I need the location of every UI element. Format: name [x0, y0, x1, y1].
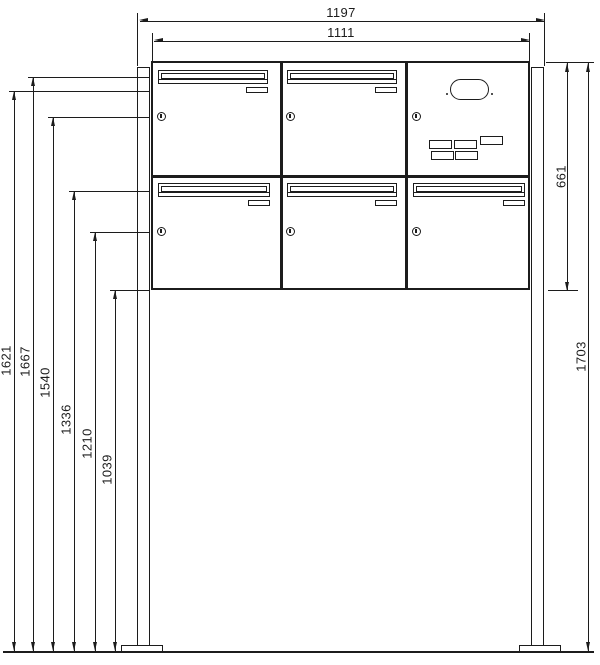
dim-arrow	[154, 38, 163, 42]
mail-slot-2	[287, 70, 397, 84]
dimension-line-cabinet-width	[154, 41, 530, 42]
dim-arrow	[113, 642, 117, 651]
dim-arrow	[72, 191, 76, 200]
mail-slot-5	[413, 183, 525, 197]
dim-arrow	[536, 18, 545, 22]
lock-pin	[160, 114, 162, 118]
lock-pin	[160, 229, 162, 233]
dim-arrow	[139, 18, 148, 22]
left-post	[137, 67, 150, 646]
dimension-line-height-1210	[95, 232, 96, 651]
call-button-2	[454, 140, 477, 149]
dim-label-height-1336: 1336	[60, 398, 73, 442]
name-plate-1	[246, 87, 268, 93]
dim-arrow	[31, 642, 35, 651]
mail-slot-inner	[290, 186, 394, 192]
lock-icon-1	[157, 112, 166, 121]
lock-icon-4	[157, 227, 166, 236]
mail-slot-flap	[288, 79, 396, 80]
mail-slot-inner	[161, 73, 265, 79]
dim-label-height-1667: 1667	[19, 340, 32, 384]
dim-arrow	[31, 77, 35, 86]
dim-label-cabinet-height: 661	[555, 155, 568, 199]
lock-icon-3	[412, 112, 421, 121]
extension-line	[152, 33, 153, 62]
dim-arrow	[72, 642, 76, 651]
dim-arrow	[586, 642, 590, 651]
dim-label-height-1210: 1210	[81, 422, 94, 466]
lock-icon-2	[286, 112, 295, 121]
lock-icon-5	[286, 227, 295, 236]
dim-arrow	[12, 642, 16, 651]
dimension-line-height-1336	[74, 191, 75, 651]
mail-slot-inner	[290, 73, 394, 79]
dim-arrow	[521, 38, 530, 42]
dim-arrow	[113, 290, 117, 299]
dim-label-height-1621: 1621	[0, 339, 13, 383]
extension-line	[9, 91, 150, 92]
name-plate-2	[375, 87, 397, 93]
dimension-line-height-1621	[14, 91, 15, 651]
name-plate-3	[248, 200, 270, 206]
speaker-grille-icon	[450, 79, 489, 100]
mail-slot-3	[158, 183, 270, 197]
mail-slot-flap	[414, 192, 524, 193]
lock-pin	[415, 114, 417, 118]
dim-arrow	[51, 642, 55, 651]
dimension-line-height-1039	[115, 290, 116, 651]
dimension-line-overall-width	[140, 21, 544, 22]
call-button-3	[480, 136, 503, 145]
dimension-line-height-1540	[53, 117, 54, 651]
dimension-line-height-1667	[33, 77, 34, 651]
lock-icon-6	[412, 227, 421, 236]
call-button-4	[431, 151, 454, 160]
mail-slot-flap	[288, 192, 396, 193]
extension-line	[90, 232, 150, 233]
lock-pin	[289, 229, 291, 233]
ground-line	[3, 651, 594, 653]
dim-label-height-1039: 1039	[101, 448, 114, 492]
name-plate-5	[503, 200, 525, 206]
mail-slot-inner	[416, 186, 522, 192]
mail-slot-flap	[159, 79, 267, 80]
technical-drawing-canvas: 1197 1111 661 1703 1621 1667 1540 1336 1…	[0, 0, 600, 665]
extension-line	[137, 13, 138, 66]
cabinet-divider-horizontal	[151, 175, 530, 178]
call-button-1	[429, 140, 452, 149]
mail-slot-flap	[159, 192, 269, 193]
dim-arrow	[12, 91, 16, 100]
dim-arrow	[93, 642, 97, 651]
dim-label-cabinet-width: 1111	[311, 26, 371, 39]
dim-arrow	[586, 63, 590, 72]
extension-line	[69, 191, 150, 192]
mail-slot-4	[287, 183, 397, 197]
extension-line	[529, 33, 530, 62]
lock-pin	[415, 229, 417, 233]
mail-slot-inner	[161, 186, 267, 192]
extension-line	[548, 290, 578, 291]
name-plate-4	[375, 200, 397, 206]
dim-arrow	[51, 117, 55, 126]
dim-label-overall-width: 1197	[311, 6, 371, 19]
mail-slot-1	[158, 70, 268, 84]
lock-pin	[289, 114, 291, 118]
dim-arrow	[93, 232, 97, 241]
extension-line	[28, 77, 150, 78]
dim-arrow	[565, 63, 569, 72]
extension-line	[48, 117, 150, 118]
dim-label-height-1540: 1540	[39, 361, 52, 405]
call-button-5	[455, 151, 478, 160]
dim-label-post-height: 1703	[575, 335, 588, 379]
right-post	[531, 67, 544, 646]
